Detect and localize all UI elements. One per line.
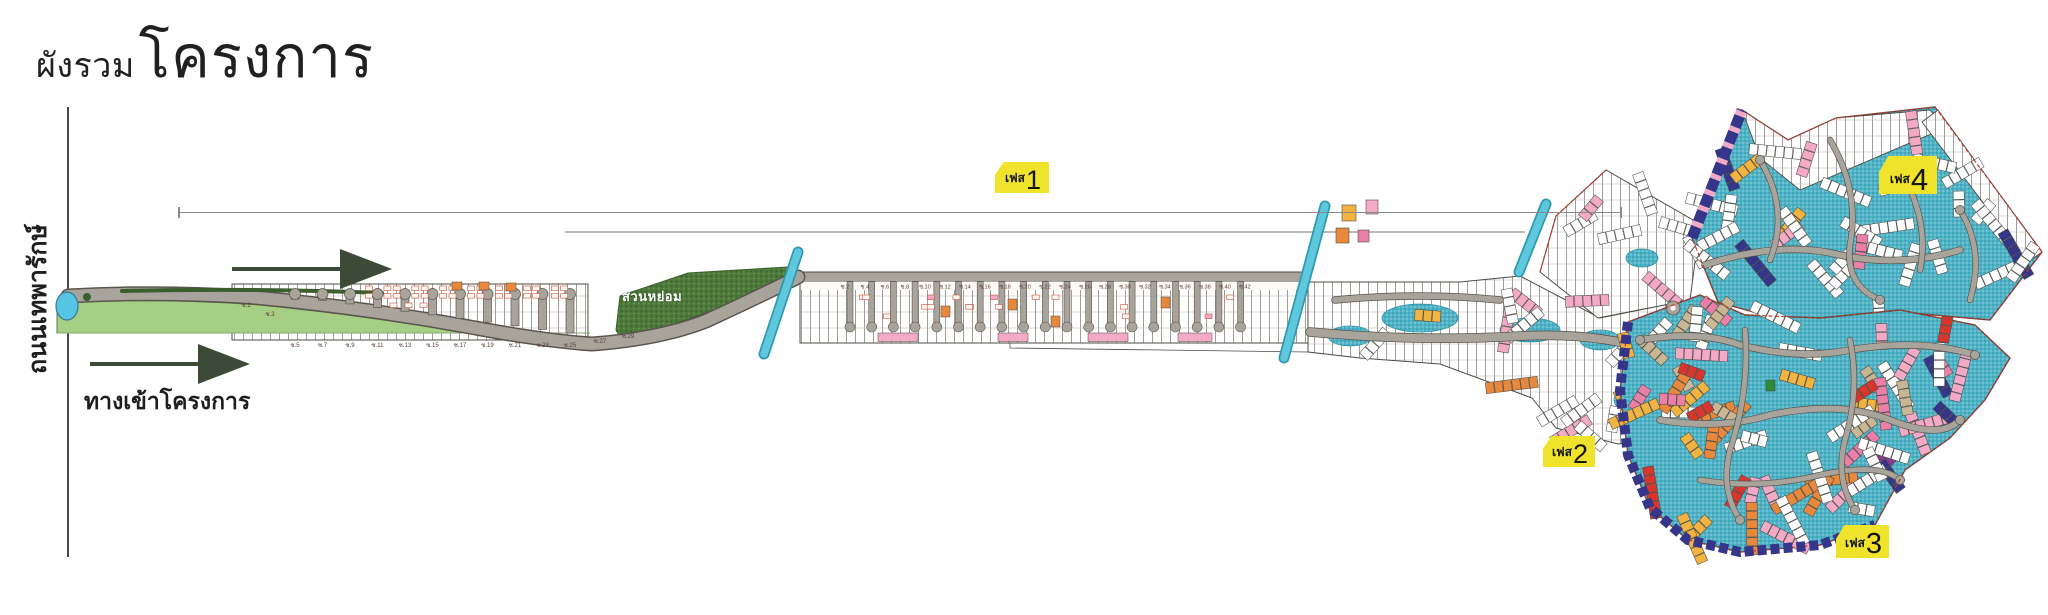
svg-text:ซ.13: ซ.13 — [399, 342, 412, 349]
svg-text:ซ.5: ซ.5 — [290, 342, 300, 349]
svg-text:ซ.19: ซ.19 — [481, 342, 494, 349]
dimension-tick-right — [1620, 207, 1622, 218]
entrance-label: ทางเข้าโครงการ — [84, 384, 250, 420]
svg-text:ซ.10: ซ.10 — [919, 283, 931, 290]
garden-label: สวนหย่อม — [622, 286, 682, 307]
svg-text:ซ.36: ซ.36 — [1179, 283, 1191, 290]
svg-text:ซ.26: ซ.26 — [1079, 283, 1091, 290]
svg-text:ซ.18: ซ.18 — [999, 283, 1011, 290]
svg-text:ซ.4: ซ.4 — [861, 283, 869, 290]
svg-text:ซ.17: ซ.17 — [454, 342, 467, 349]
svg-text:ซ.29: ซ.29 — [622, 333, 635, 340]
svg-text:ซ.40: ซ.40 — [1219, 283, 1231, 290]
svg-text:ซ.6: ซ.6 — [881, 283, 889, 290]
svg-text:ซ.7: ซ.7 — [318, 342, 328, 349]
phase-1-prefix: เฟส — [1005, 169, 1025, 188]
svg-text:ซ.20: ซ.20 — [1019, 283, 1031, 290]
road-name-label: ถนนเทพารักษ์ — [22, 169, 54, 429]
phase1-extent-line — [178, 207, 1622, 218]
phase-2-badge: เฟส 2 — [1543, 436, 1595, 467]
svg-text:ซ.14: ซ.14 — [959, 283, 971, 290]
svg-text:ซ.1: ซ.1 — [241, 302, 251, 309]
svg-text:ซ.21: ซ.21 — [509, 342, 522, 349]
svg-text:ซ.24: ซ.24 — [1059, 283, 1071, 290]
svg-text:ซ.8: ซ.8 — [901, 283, 909, 290]
svg-text:ซ.38: ซ.38 — [1199, 283, 1211, 290]
svg-text:ซ.3: ซ.3 — [265, 311, 275, 318]
phase-3-prefix: เฟส — [1845, 534, 1865, 553]
svg-text:ซ.27: ซ.27 — [594, 338, 607, 345]
svg-text:ซ.2: ซ.2 — [841, 283, 849, 290]
svg-text:ซ.12: ซ.12 — [939, 283, 951, 290]
svg-text:ซ.9: ซ.9 — [345, 342, 355, 349]
phase-3-number: 3 — [1866, 532, 1882, 557]
svg-text:ซ.28: ซ.28 — [1099, 283, 1111, 290]
svg-text:ซ.34: ซ.34 — [1159, 283, 1171, 290]
phase-2-prefix: เฟส — [1552, 443, 1572, 462]
svg-text:ซ.16: ซ.16 — [979, 283, 991, 290]
svg-text:ซ.42: ซ.42 — [1239, 283, 1251, 290]
phase-3-badge: เฟส 3 — [1836, 525, 1889, 558]
svg-text:ซ.15: ซ.15 — [426, 342, 439, 349]
phase-4-prefix: เฟส — [1890, 170, 1910, 189]
phase-1-badge: เฟส 1 — [995, 162, 1049, 193]
phase-2-number: 2 — [1573, 443, 1588, 466]
svg-text:ซ.22: ซ.22 — [1039, 283, 1051, 290]
page-title-large: โครงการ — [139, 10, 374, 103]
dimension-bar — [178, 212, 1622, 213]
svg-text:ซ.11: ซ.11 — [372, 342, 385, 349]
phase-4-badge: เฟส 4 — [1879, 156, 1937, 194]
page-title: ผังรวมโครงการ — [36, 10, 374, 103]
svg-text:ซ.25: ซ.25 — [564, 342, 577, 349]
phase-1-number: 1 — [1026, 169, 1041, 192]
master-plan-page: ซ.1ซ.3ซ.5ซ.7ซ.9ซ.11ซ.13ซ.15ซ.17ซ.19ซ.21ซ… — [0, 0, 2048, 615]
svg-text:ซ.23: ซ.23 — [536, 342, 549, 349]
svg-text:ซ.32: ซ.32 — [1139, 283, 1151, 290]
svg-text:ซ.30: ซ.30 — [1119, 283, 1131, 290]
page-title-small: ผังรวม — [36, 38, 135, 92]
phase-4-number: 4 — [1911, 167, 1928, 193]
